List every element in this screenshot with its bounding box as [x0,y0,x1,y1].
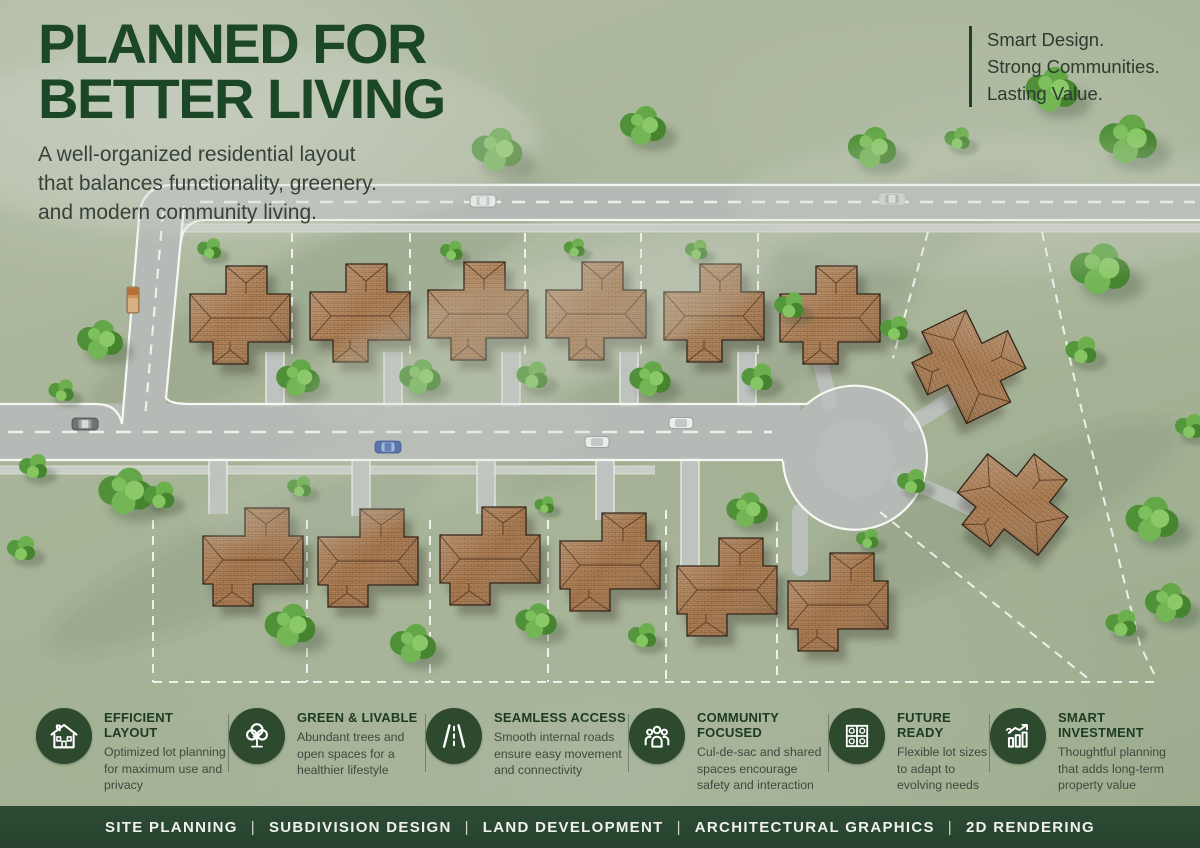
feature-green-livable: GREEN & LIVABLE Abundant trees and open … [229,702,425,779]
feature-divider [628,714,629,772]
tagline-line: Lasting Value. [987,80,1160,107]
feature-title: GREEN & LIVABLE [297,702,425,725]
service-item: SITE PLANNING [105,819,238,836]
lots-grid-icon [829,708,885,764]
feature-efficient-layout: EFFICIENT LAYOUT Optimized lot planning … [36,702,228,794]
services-footer: SITE PLANNING | SUBDIVISION DESIGN | LAN… [0,806,1200,848]
car-white-3 [669,418,693,429]
subtitle-line: and modern community living. [38,198,508,227]
growth-chart-icon [990,708,1046,764]
tagline-line: Strong Communities. [987,53,1160,80]
page-title: PLANNED FOR BETTER LIVING [38,16,508,126]
subtitle-line: A well-organized residential layout [38,140,508,169]
people-icon [629,708,685,764]
title-line-2: BETTER LIVING [38,71,508,126]
feature-title: SEAMLESS ACCESS [494,702,628,725]
feature-smart-investment: SMART INVESTMENT Thoughtful planning tha… [990,702,1180,794]
header: PLANNED FOR BETTER LIVING A well-organiz… [38,16,508,227]
feature-desc: Smooth internal roads ensure easy moveme… [494,729,628,779]
feature-desc: Thoughtful planning that adds long-term … [1058,744,1180,794]
tagline-line: Smart Design. [987,26,1160,53]
subtitle: A well-organized residential layout that… [38,140,508,227]
tagline: Smart Design. Strong Communities. Lastin… [969,26,1160,107]
separator: | [664,819,695,836]
feature-future-ready: FUTURE READY Flexible lot sizes to adapt… [829,702,989,794]
service-item: ARCHITECTURAL GRAPHICS [695,819,935,836]
feature-desc: Optimized lot planning for maximum use a… [104,744,228,794]
feature-divider [228,714,229,772]
poster: PLANNED FOR BETTER LIVING A well-organiz… [0,0,1200,848]
service-item: SUBDIVISION DESIGN [269,819,452,836]
house-icon [36,708,92,764]
service-item: 2D RENDERING [966,819,1095,836]
feature-desc: Cul-de-sac and shared spaces encourage s… [697,744,828,794]
separator: | [238,819,269,836]
road-icon [426,708,482,764]
feature-title: FUTURE READY [897,702,989,740]
feature-seamless-access: SEAMLESS ACCESS Smooth internal roads en… [426,702,628,779]
feature-divider [828,714,829,772]
truck-orange [127,287,139,313]
feature-divider [989,714,990,772]
car-gray [72,418,98,430]
feature-desc: Flexible lot sizes to adapt to evolving … [897,744,989,794]
feature-list: EFFICIENT LAYOUT Optimized lot planning … [36,702,1186,794]
tree-icon [229,708,285,764]
feature-title: COMMUNITY FOCUSED [697,702,828,740]
feature-title: EFFICIENT LAYOUT [104,702,228,740]
service-item: LAND DEVELOPMENT [483,819,664,836]
feature-title: SMART INVESTMENT [1058,702,1180,740]
separator: | [935,819,966,836]
title-line-1: PLANNED FOR [38,16,508,71]
separator: | [452,819,483,836]
feature-divider [425,714,426,772]
subtitle-line: that balances functionality, greenery. [38,169,508,198]
feature-community-focused: COMMUNITY FOCUSED Cul-de-sac and shared … [629,702,828,794]
feature-desc: Abundant trees and open spaces for a hea… [297,729,425,779]
